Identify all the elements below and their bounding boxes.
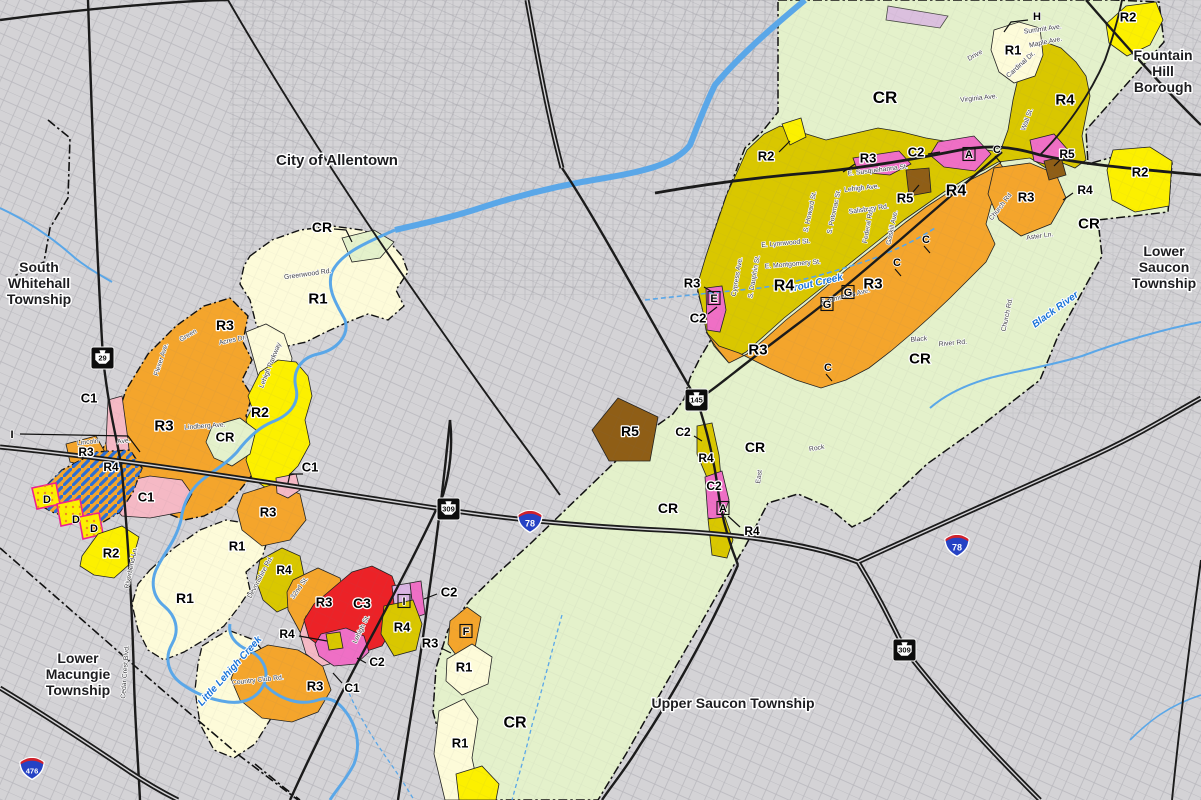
zone-label-r3: R3 bbox=[316, 595, 333, 610]
zone-label-r4: R4 bbox=[698, 451, 714, 465]
zone-label-r3: R3 bbox=[860, 151, 877, 166]
zone-label-c1: C1 bbox=[344, 681, 360, 695]
zone-label-r2: R2 bbox=[103, 546, 120, 561]
overlay-letter-h: H bbox=[1033, 11, 1041, 23]
svg-text:29: 29 bbox=[98, 354, 106, 363]
street-label: Black bbox=[910, 335, 928, 343]
overlay-letter-c: C bbox=[893, 257, 901, 269]
zoning-map: Greenwood Rd.Flexer Ave.GreenAcres Dr.Le… bbox=[0, 0, 1201, 800]
svg-text:145: 145 bbox=[690, 396, 703, 405]
zone-label-c3: C3 bbox=[353, 595, 371, 611]
zone-label-r4: R4 bbox=[103, 460, 119, 474]
overlay-letter-d: D bbox=[72, 514, 80, 526]
overlay-letter-a: A bbox=[719, 503, 727, 515]
zone-label-cr: CR bbox=[216, 430, 235, 445]
zone-label-r3: R3 bbox=[748, 341, 767, 358]
zone-label-r4: R4 bbox=[946, 183, 967, 200]
zone-label-c2: C2 bbox=[706, 479, 722, 493]
zone-label-r4: R4 bbox=[1077, 183, 1093, 197]
zone-label-r1: R1 bbox=[1005, 43, 1022, 58]
zone-label-r2: R2 bbox=[758, 149, 775, 164]
zone-label-c1: C1 bbox=[302, 460, 319, 475]
zone-label-c2: C2 bbox=[690, 311, 707, 326]
zone-label-r2: R2 bbox=[1120, 10, 1137, 25]
zone-label-r4: R4 bbox=[774, 278, 795, 295]
zone-label-r5: R5 bbox=[621, 423, 639, 439]
zone-label-r2: R2 bbox=[251, 404, 269, 420]
zone-label-r3: R3 bbox=[863, 275, 882, 292]
overlay-letter-a: A bbox=[965, 149, 973, 161]
zone-label-r5: R5 bbox=[897, 191, 914, 206]
zone-label-r2: R2 bbox=[1132, 165, 1149, 180]
overlay-letter-d: D bbox=[90, 523, 98, 535]
zone-label-cr: CR bbox=[312, 219, 332, 235]
zone-label-cr: CR bbox=[745, 439, 765, 455]
zone-label-cr: CR bbox=[1078, 215, 1100, 232]
overlay-letter-i: I bbox=[402, 596, 405, 608]
svg-text:476: 476 bbox=[26, 767, 39, 776]
overlay-letter-g: G bbox=[844, 287, 853, 299]
zone-label-cr: CR bbox=[909, 350, 931, 367]
zone-label-c1: C1 bbox=[138, 490, 155, 505]
zone-region-r4-dot bbox=[326, 632, 343, 650]
zone-label-r1: R1 bbox=[176, 590, 194, 606]
zone-label-c2: C2 bbox=[369, 655, 385, 669]
zone-label-r3: R3 bbox=[1018, 190, 1035, 205]
zone-label-c2: C2 bbox=[441, 585, 458, 600]
zone-label-cr: CR bbox=[658, 500, 678, 516]
zone-label-r4: R4 bbox=[279, 627, 295, 641]
zone-label-c2: C2 bbox=[908, 145, 925, 160]
svg-text:309: 309 bbox=[442, 505, 455, 514]
zone-label-r1: R1 bbox=[308, 290, 327, 307]
zone-label-r4: R4 bbox=[744, 524, 760, 538]
keystone-shield-29: 29 bbox=[91, 347, 114, 369]
zone-label-r3: R3 bbox=[422, 636, 439, 651]
overlay-letter-c: C bbox=[993, 144, 1001, 156]
map-canvas: Greenwood Rd.Flexer Ave.GreenAcres Dr.Le… bbox=[0, 0, 1201, 800]
zone-label-r3: R3 bbox=[260, 505, 277, 520]
zone-label-r3: R3 bbox=[78, 445, 94, 459]
zone-label-cr: CR bbox=[503, 715, 527, 732]
zone-label-r1: R1 bbox=[456, 660, 473, 675]
zone-label-r3: R3 bbox=[154, 417, 173, 434]
svg-text:309: 309 bbox=[898, 646, 911, 655]
township-label: Upper Saucon Township bbox=[651, 695, 814, 711]
zone-label-r4: R4 bbox=[276, 563, 292, 577]
zone-label-cr: CR bbox=[873, 88, 898, 107]
keystone-shield-145: 145 bbox=[685, 389, 708, 411]
keystone-shield-309: 309 bbox=[437, 498, 460, 520]
overlay-letter-d: D bbox=[43, 494, 51, 506]
zone-label-r1: R1 bbox=[452, 736, 469, 751]
township-label: City of Allentown bbox=[276, 152, 398, 169]
svg-text:78: 78 bbox=[525, 519, 535, 529]
zone-label-r1: R1 bbox=[229, 539, 246, 554]
street-label: Ave. bbox=[117, 437, 131, 445]
zone-label-c1: C1 bbox=[81, 391, 98, 406]
zone-label-r3: R3 bbox=[307, 679, 324, 694]
svg-text:78: 78 bbox=[952, 543, 962, 553]
zone-label-r4: R4 bbox=[1055, 91, 1075, 108]
overlay-letter-c: C bbox=[922, 234, 930, 246]
zone-label-r5: R5 bbox=[1059, 147, 1075, 161]
overlay-letter-i: I bbox=[10, 429, 13, 441]
overlay-letter-c: C bbox=[824, 362, 832, 374]
zone-label-r3: R3 bbox=[684, 276, 701, 291]
overlay-letter-e: E bbox=[710, 293, 717, 305]
overlay-letter-g: G bbox=[823, 299, 832, 311]
zone-label-r3: R3 bbox=[216, 317, 234, 333]
zone-label-c2: C2 bbox=[675, 425, 691, 439]
overlay-letter-f: F bbox=[463, 626, 470, 638]
zone-label-r4: R4 bbox=[394, 620, 411, 635]
keystone-shield-309: 309 bbox=[893, 639, 916, 661]
